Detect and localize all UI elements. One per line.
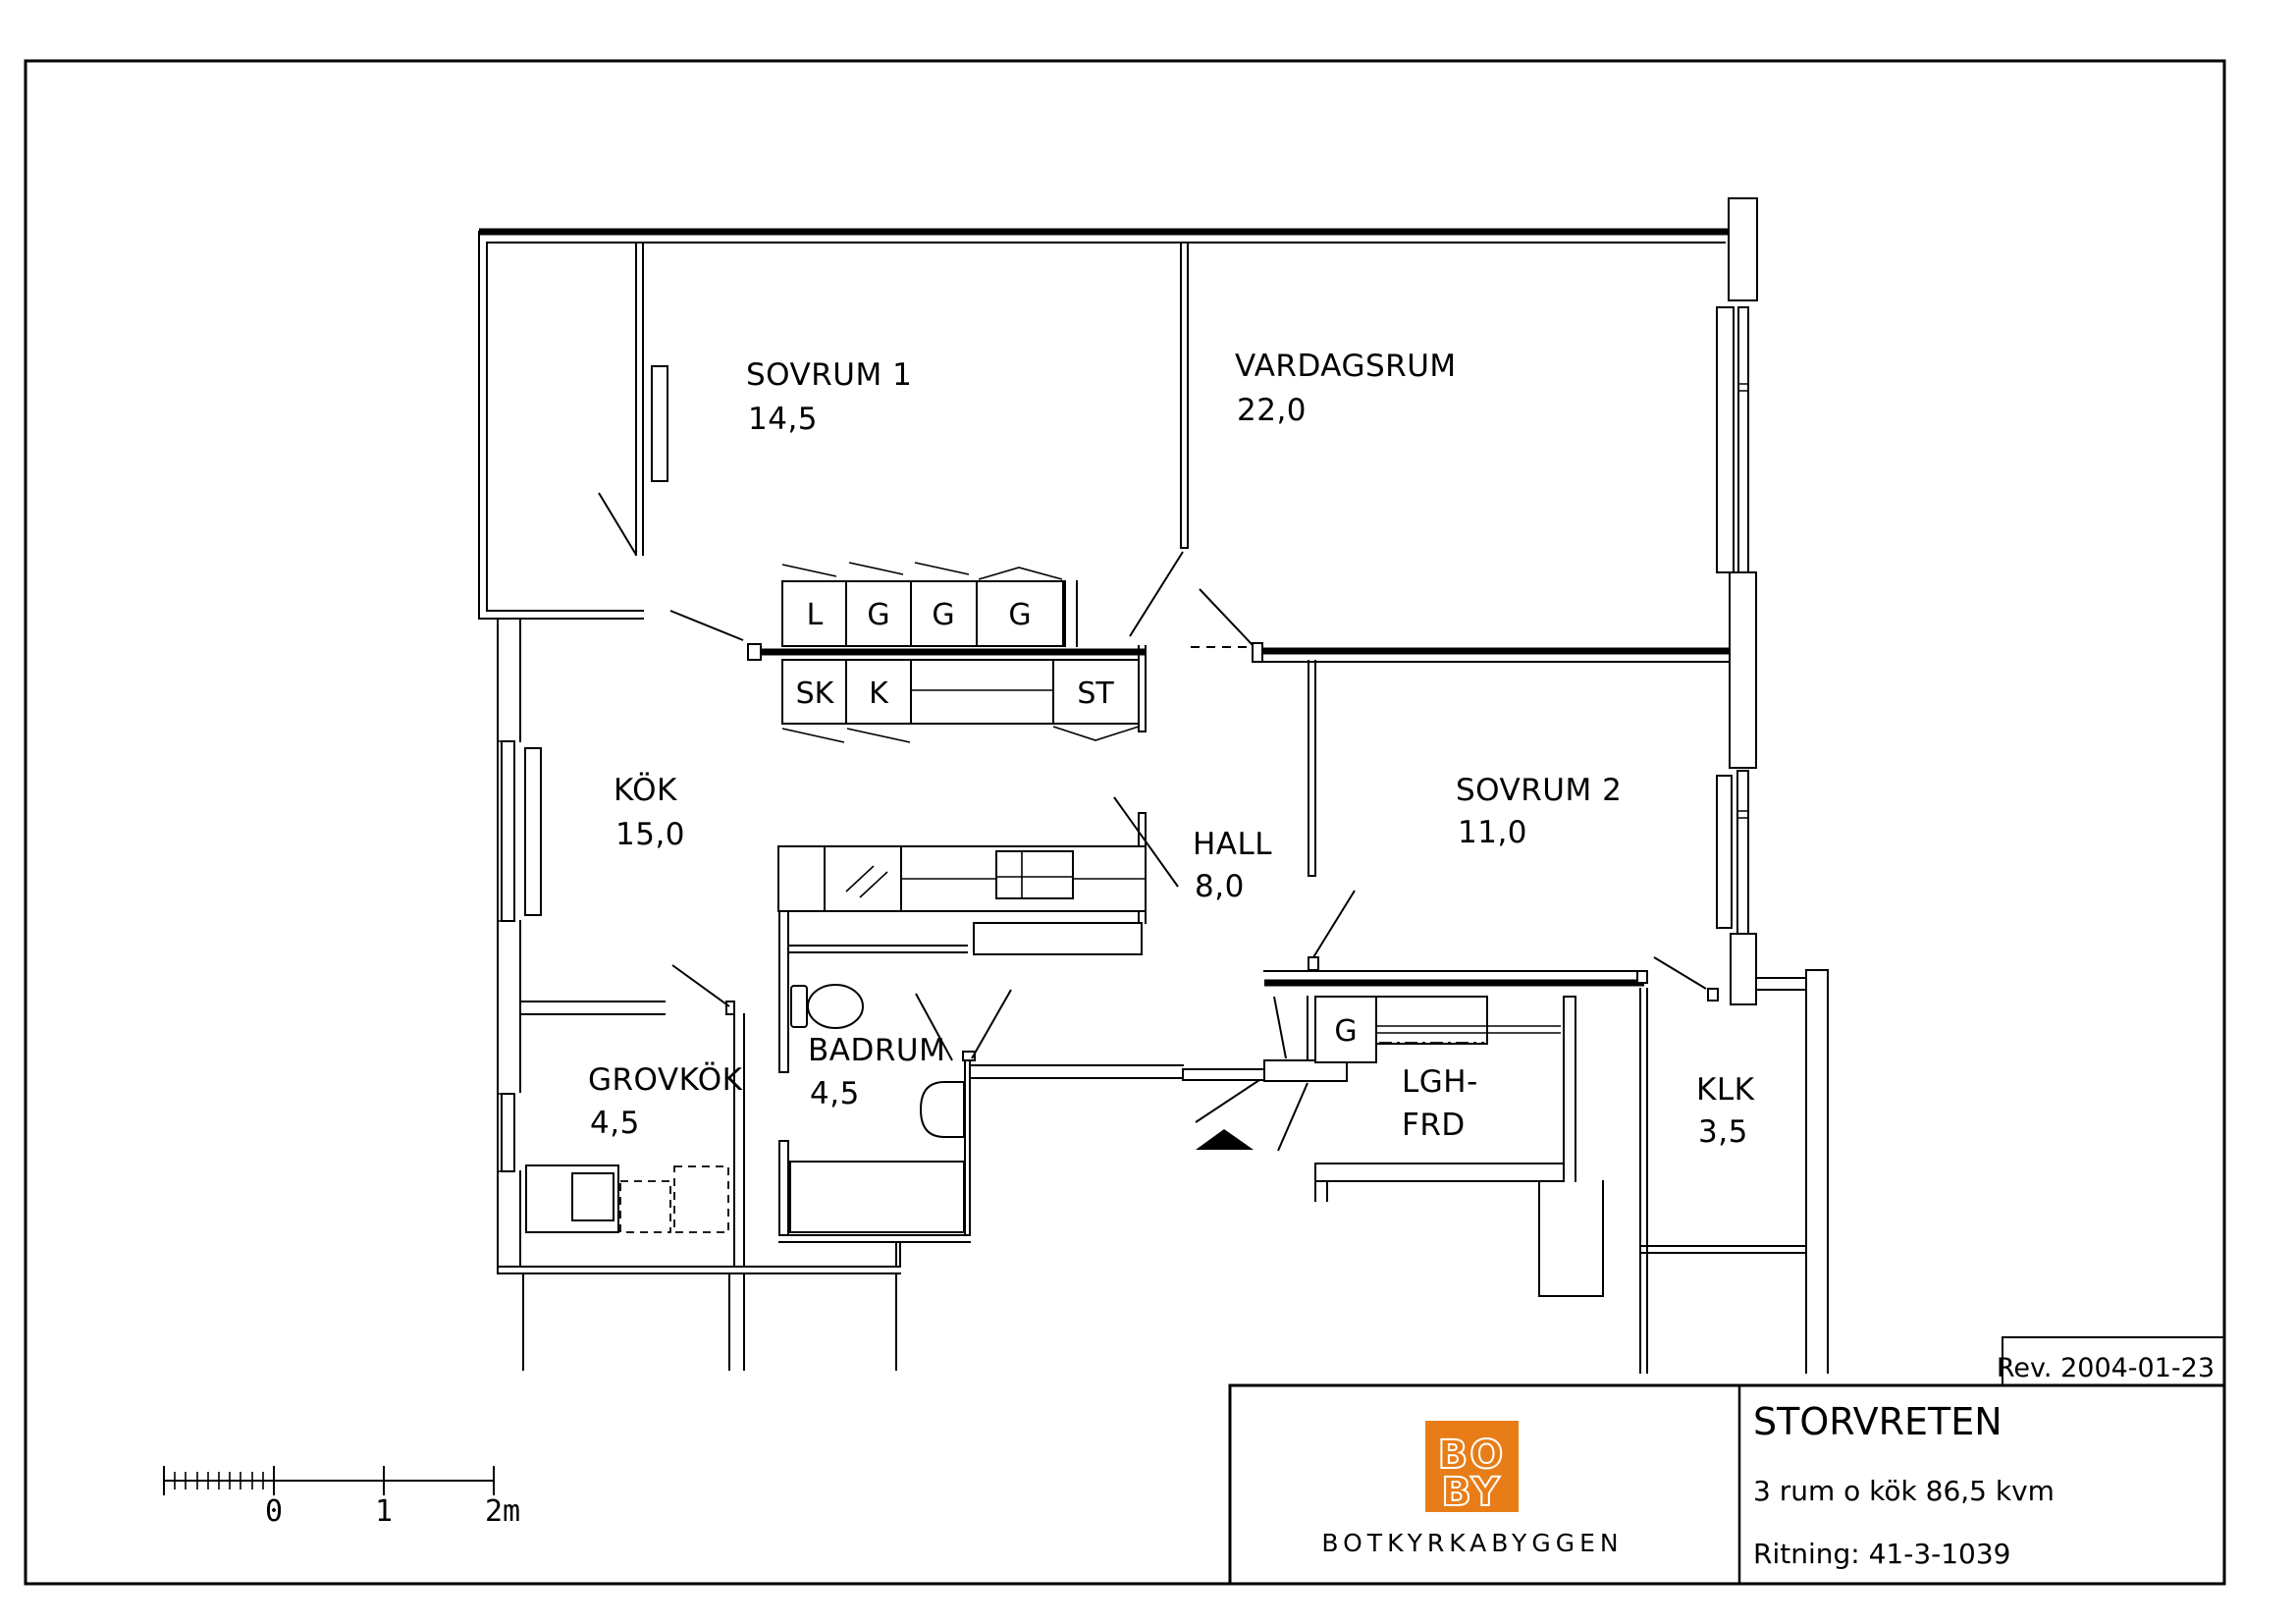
- boby-logo-text-2: BY: [1441, 1470, 1501, 1515]
- hall-vardagsrum-leaf: [1200, 589, 1253, 645]
- washbasin-icon: [921, 1082, 964, 1137]
- room-area-sovrum2: 11,0: [1458, 815, 1527, 850]
- stove-icon: [996, 851, 1073, 898]
- balcony-window: [652, 366, 667, 481]
- klk-door-leaf: [1654, 957, 1706, 989]
- scale-label-2m: 2m: [485, 1494, 520, 1529]
- appliance-dashed-1: [620, 1181, 670, 1232]
- cabinet-label-hall-g: G: [1334, 1014, 1357, 1049]
- room-label-badrum: BADRUM: [808, 1033, 945, 1068]
- floor-plan-page: SOVRUM 1 14,5 VARDAGSRUM 22,0 KÖK 15,0 S…: [0, 0, 2296, 1624]
- room-label-grovkok: GROVKÖK: [588, 1061, 743, 1098]
- room-label-klk: KLK: [1696, 1072, 1755, 1108]
- appliance-dashed-2: [674, 1166, 728, 1232]
- room-area-kok: 15,0: [615, 817, 685, 852]
- cabinet-label-g1: G: [867, 598, 889, 632]
- scale-bar: 0 1 2m: [164, 1467, 520, 1529]
- hall-closet-door-leaf: [1274, 997, 1286, 1058]
- room-label-hall: HALL: [1193, 827, 1272, 862]
- room-area-hall: 8,0: [1195, 869, 1245, 904]
- sovrum1-door-leaf: [670, 611, 743, 640]
- room-labels: SOVRUM 1 14,5 VARDAGSRUM 22,0 KÖK 15,0 S…: [588, 349, 1755, 1150]
- page-frame: [26, 61, 2224, 1584]
- grovkok-window: [502, 1094, 514, 1171]
- grovkok-door-leaf: [672, 965, 729, 1006]
- project-title: STORVRETEN: [1753, 1400, 2002, 1443]
- company-name: BOTKYRKABYGGEN: [1321, 1529, 1623, 1557]
- scale-label-0: 0: [265, 1494, 283, 1529]
- vardagsrum-door-leaf: [1130, 552, 1183, 636]
- sovrum2-door-leaf: [1313, 891, 1355, 957]
- title-block: Rev. 2004-01-23 BO BY BOTKYRKABYGGEN STO…: [1230, 1353, 2224, 1584]
- room-label-sovrum2: SOVRUM 2: [1456, 773, 1622, 808]
- kok-window: [502, 741, 514, 921]
- cabinet-label-g2: G: [932, 598, 954, 632]
- balcony-door-leaf: [599, 493, 636, 555]
- entrance-arrow-icon: [1196, 1129, 1254, 1150]
- scale-label-1: 1: [375, 1494, 393, 1529]
- room-area-klk: 3,5: [1698, 1114, 1748, 1150]
- drawing-number: Ritning: 41-3-1039: [1753, 1538, 2011, 1570]
- revision-text: Rev. 2004-01-23: [1997, 1353, 2215, 1383]
- toilet-tank: [791, 986, 807, 1027]
- cabinet-label-l: L: [807, 598, 824, 632]
- grovkok-sink-icon: [572, 1173, 614, 1220]
- room-label-lghfrd-2: FRD: [1402, 1108, 1466, 1143]
- room-label-sovrum1: SOVRUM 1: [746, 357, 912, 393]
- room-area-sovrum1: 14,5: [748, 402, 818, 437]
- toilet-icon: [808, 985, 863, 1028]
- wardrobe-shelf: [1376, 997, 1487, 1044]
- walls: [479, 198, 1828, 1373]
- room-area-grovkok: 4,5: [590, 1106, 640, 1141]
- apartment-description: 3 rum o kök 86,5 kvm: [1753, 1475, 2055, 1507]
- entrance-threshold: [1183, 1069, 1264, 1080]
- room-area-badrum: 4,5: [810, 1076, 860, 1111]
- cabinet-label-g3: G: [1008, 598, 1031, 632]
- cabinet-label-sk: SK: [796, 677, 835, 711]
- room-area-vardagsrum: 22,0: [1237, 393, 1307, 428]
- room-label-kok: KÖK: [614, 772, 677, 808]
- room-label-lghfrd-1: LGH-: [1402, 1064, 1478, 1100]
- cabinet-label-st: ST: [1077, 677, 1114, 711]
- kok-radiator: [525, 748, 541, 915]
- cabinet-label-k: K: [869, 677, 889, 711]
- bathtub-icon: [790, 1162, 964, 1232]
- room-label-vardagsrum: VARDAGSRUM: [1235, 349, 1457, 384]
- doors: [599, 493, 1706, 1151]
- hall-shelf: [974, 923, 1142, 954]
